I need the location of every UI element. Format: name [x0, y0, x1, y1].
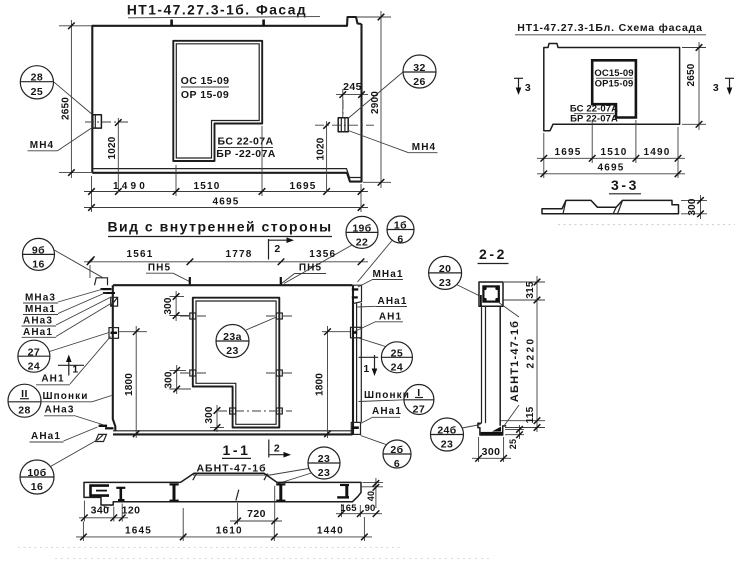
svg-text:1-1: 1-1 — [222, 442, 250, 458]
svg-text:115: 115 — [525, 406, 536, 423]
svg-text:ПН5: ПН5 — [148, 263, 171, 274]
svg-text:1490: 1490 — [643, 147, 670, 158]
svg-text:20: 20 — [439, 263, 451, 275]
svg-text:23а: 23а — [223, 331, 242, 343]
svg-text:3: 3 — [713, 82, 719, 94]
svg-text:40: 40 — [366, 491, 376, 501]
svg-text:245: 245 — [343, 81, 362, 93]
svg-text:300: 300 — [687, 198, 698, 216]
svg-text:АН1: АН1 — [41, 374, 64, 385]
svg-text:1510: 1510 — [600, 147, 627, 158]
svg-text:25: 25 — [391, 348, 403, 360]
svg-text:2650: 2650 — [686, 63, 697, 86]
svg-text:22: 22 — [356, 237, 368, 249]
svg-text:МН4: МН4 — [412, 142, 436, 153]
svg-text:МНа1: МНа1 — [372, 269, 403, 280]
svg-text:23: 23 — [318, 467, 330, 479]
svg-text:БС 22-07А: БС 22-07А — [218, 136, 274, 148]
svg-text:Шпонки: Шпонки — [364, 390, 410, 401]
svg-text:БР -22-07А: БР -22-07А — [216, 148, 275, 160]
svg-text:1510: 1510 — [193, 181, 220, 192]
svg-text:340: 340 — [91, 505, 110, 517]
svg-text:Вид с внутренней стороны: Вид с внутренней стороны — [107, 219, 332, 235]
svg-text:315: 315 — [525, 281, 536, 299]
svg-text:16: 16 — [32, 259, 44, 271]
svg-text:28: 28 — [18, 405, 30, 417]
svg-text:2: 2 — [274, 443, 280, 455]
svg-text:АНа1: АНа1 — [372, 406, 402, 417]
svg-text:27: 27 — [28, 346, 40, 358]
svg-text:300: 300 — [163, 371, 174, 389]
svg-text:1800: 1800 — [315, 373, 326, 396]
svg-text:1561: 1561 — [126, 249, 153, 260]
svg-text:4695: 4695 — [212, 197, 239, 208]
svg-text:1: 1 — [72, 364, 78, 376]
svg-text:23: 23 — [441, 439, 453, 451]
svg-text:ОР 15-09: ОР 15-09 — [181, 89, 229, 101]
svg-text:24: 24 — [28, 360, 40, 372]
svg-text:2220: 2220 — [526, 337, 537, 369]
svg-text:23: 23 — [226, 345, 238, 357]
svg-text:АНа1: АНа1 — [31, 431, 61, 442]
svg-text:16: 16 — [31, 481, 43, 493]
svg-text:1610: 1610 — [216, 526, 243, 537]
svg-text:1778: 1778 — [225, 249, 252, 260]
svg-text:АНа1: АНа1 — [23, 327, 53, 338]
svg-text:БР 22-07А: БР 22-07А — [570, 114, 618, 125]
svg-text:1490: 1490 — [113, 181, 148, 192]
svg-text:28: 28 — [31, 72, 43, 84]
svg-text:2: 2 — [274, 243, 280, 255]
svg-text:720: 720 — [247, 508, 266, 520]
svg-text:АНа3: АНа3 — [45, 405, 75, 416]
svg-text:1440: 1440 — [317, 526, 344, 537]
svg-text:27: 27 — [413, 404, 425, 416]
svg-text:3: 3 — [525, 82, 531, 94]
svg-text:25: 25 — [508, 439, 518, 449]
svg-text:ОР15-09: ОР15-09 — [595, 79, 634, 90]
svg-text:25: 25 — [31, 86, 43, 98]
svg-text:24б: 24б — [437, 425, 456, 437]
svg-text:23: 23 — [439, 277, 451, 289]
svg-text:ПН5: ПН5 — [299, 263, 322, 274]
svg-text:АНа3: АНа3 — [23, 316, 53, 327]
svg-text:НТ1-47.27.3-1Бл. Схема фасада: НТ1-47.27.3-1Бл. Схема фасада — [517, 22, 703, 34]
svg-text:1: 1 — [363, 363, 369, 375]
svg-text:АБНТ1-47-1б: АБНТ1-47-1б — [509, 320, 521, 402]
svg-text:ОС15-09: ОС15-09 — [594, 68, 633, 79]
svg-text:1800: 1800 — [124, 373, 135, 396]
svg-text:1695: 1695 — [289, 181, 316, 192]
svg-text:АН1: АН1 — [379, 312, 402, 323]
svg-text:26: 26 — [413, 76, 425, 88]
svg-text:1356: 1356 — [309, 249, 336, 260]
svg-text:1695: 1695 — [554, 147, 581, 158]
svg-text:4695: 4695 — [597, 163, 624, 174]
svg-text:90: 90 — [365, 503, 376, 514]
svg-text:Шпонки: Шпонки — [43, 391, 89, 402]
svg-text:9б: 9б — [32, 245, 45, 257]
svg-text:1б: 1б — [394, 220, 407, 232]
svg-text:1020: 1020 — [107, 136, 118, 159]
svg-text:3-3: 3-3 — [611, 177, 639, 193]
svg-text:НТ1-47.27.3-1б. Фасад: НТ1-47.27.3-1б. Фасад — [127, 3, 307, 18]
svg-text:300: 300 — [163, 297, 174, 315]
svg-text:МНа1: МНа1 — [25, 304, 56, 315]
svg-text:300: 300 — [204, 406, 215, 424]
svg-text:10б: 10б — [27, 467, 46, 479]
svg-text:6: 6 — [394, 458, 400, 470]
svg-text:23: 23 — [318, 453, 330, 465]
svg-text:300: 300 — [482, 446, 501, 458]
svg-text:165: 165 — [340, 503, 357, 514]
svg-text:24: 24 — [391, 362, 403, 374]
svg-text:2-2: 2-2 — [479, 246, 507, 262]
svg-text:19б: 19б — [352, 223, 371, 235]
svg-text:120: 120 — [122, 505, 141, 517]
svg-text:6: 6 — [397, 234, 403, 246]
svg-text:1020: 1020 — [316, 137, 327, 160]
svg-text:АНа1: АНа1 — [378, 296, 408, 307]
svg-text:1645: 1645 — [125, 526, 152, 537]
svg-text:2б: 2б — [390, 444, 403, 456]
svg-text:2650: 2650 — [60, 97, 71, 120]
svg-text:32: 32 — [413, 62, 425, 74]
svg-text:2900: 2900 — [370, 91, 381, 114]
svg-text:МН4: МН4 — [30, 140, 54, 151]
svg-text:ОС 15-09: ОС 15-09 — [181, 75, 230, 87]
svg-text:МНа3: МНа3 — [25, 293, 56, 304]
